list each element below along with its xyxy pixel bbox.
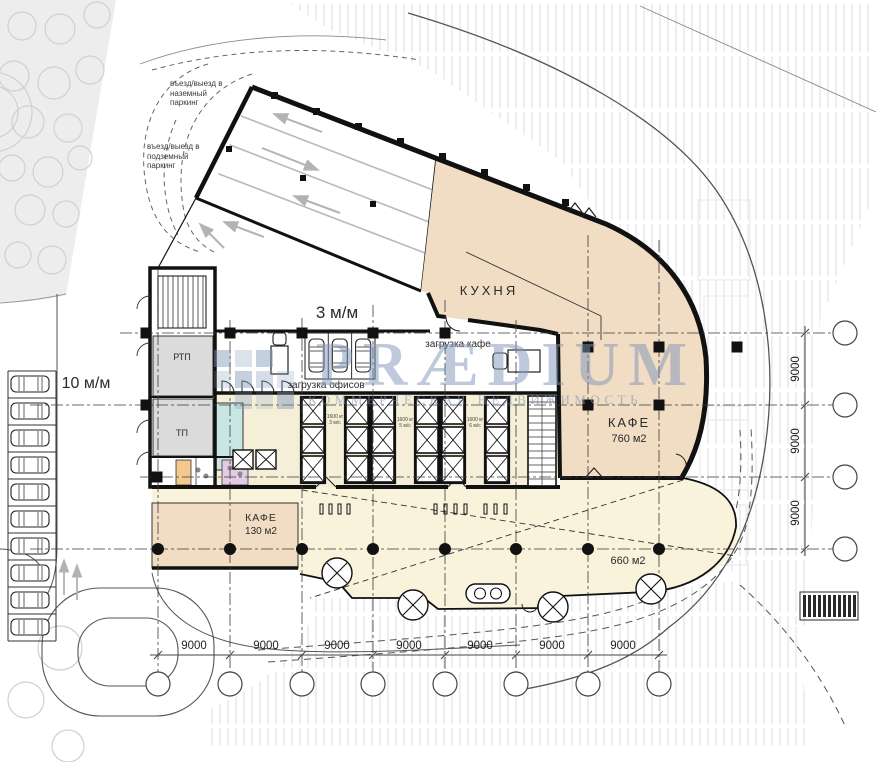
dim-label: 9000	[324, 640, 350, 652]
label-hall-area: 660 м2	[610, 555, 645, 568]
dim-label: 9000	[790, 428, 802, 454]
elevator-label: 1600 кг 5 м/с	[397, 418, 414, 429]
dim-label: 9000	[539, 640, 565, 652]
elevator-speed: 6 м/с	[467, 424, 484, 430]
room-orange	[176, 460, 191, 485]
note-surface-parking-entry: въезд/выезд в наземный паркинг	[170, 79, 223, 108]
label-kitchen: КУХНЯ	[460, 284, 518, 299]
floor-plan-page: въезд/выезд в наземный паркинг въезд/вые…	[0, 0, 876, 762]
dim-label: 9000	[790, 356, 802, 382]
site-plan-drawing	[0, 0, 876, 762]
label-parking-3: 3 м/м	[316, 303, 358, 323]
label-rtp: РТП	[173, 352, 191, 362]
elevator-label: 1600 кг 3 м/с	[327, 415, 344, 426]
label-cafe-main-area: 760 м2	[611, 433, 646, 446]
room-rtp	[153, 336, 213, 396]
label-tp: ТП	[176, 428, 188, 438]
grid-bubble	[833, 321, 857, 561]
elevator-speed: 3 м/с	[327, 421, 344, 427]
dim-label: 9000	[396, 640, 422, 652]
dim-label: 9000	[610, 640, 636, 652]
truck-icon	[271, 333, 288, 374]
door-arc-icon	[137, 296, 150, 465]
drainage-grate-icon	[800, 592, 858, 620]
label-office-loading: загрузка офисов	[287, 380, 364, 392]
label-cafe-main-name: КАФЕ	[608, 416, 650, 431]
surface-parking-10	[8, 371, 56, 641]
revolving-door-icon	[466, 584, 510, 603]
dim-label: 9000	[253, 640, 279, 652]
label-cafe-loading: загрузка кафе	[425, 339, 491, 351]
stair-core	[528, 396, 556, 486]
dim-label: 9000	[790, 500, 802, 526]
label-parking-10: 10 м/м	[62, 375, 111, 393]
label-cafe-small-area: 130 м2	[245, 526, 277, 538]
truck-icon	[493, 350, 540, 372]
stair-tower	[158, 276, 206, 328]
elevator-speed: 5 м/с	[397, 424, 414, 430]
dim-label: 9000	[181, 640, 207, 652]
label-cafe-small-name: КАФЕ	[245, 512, 277, 524]
elevator-label: 1600 кг 6 м/с	[467, 418, 484, 429]
loading-yard	[271, 333, 540, 379]
dim-label: 9000	[467, 640, 493, 652]
note-underground-parking-entry: въезд/выезд в подземный паркинг	[147, 142, 200, 171]
